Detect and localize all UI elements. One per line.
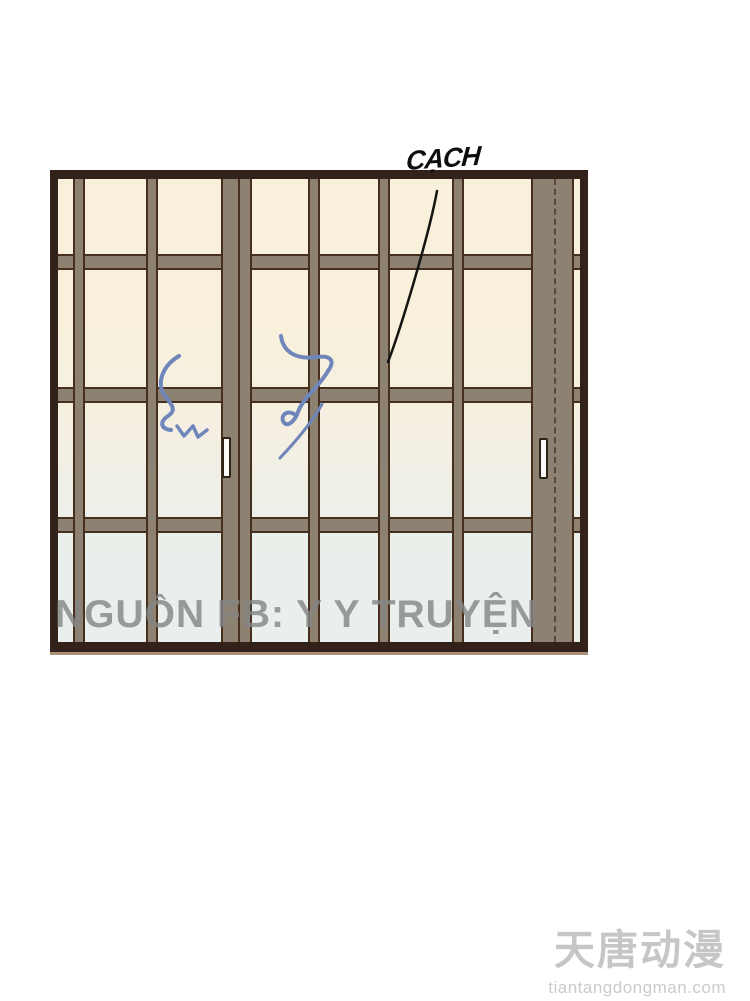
watermark: NGUỒN FB: Y Y TRUYỆN <box>55 593 538 637</box>
window-glass <box>58 179 580 642</box>
sliding-door-window-frame <box>50 170 588 655</box>
stile-divider-line <box>238 179 240 642</box>
door-handle-left <box>222 437 231 478</box>
left-door-muntin <box>146 179 158 642</box>
left-track-stile <box>73 179 85 642</box>
stile-dashed-line <box>554 179 556 642</box>
right-door-edge-stile <box>531 179 574 642</box>
sfx-text: CẠCH <box>405 141 481 177</box>
center-meeting-stiles <box>221 179 252 642</box>
right-door-muntin-1 <box>308 179 320 642</box>
publisher-logo: 天唐动漫 tiantangdongman.com <box>548 916 726 998</box>
door-handle-right <box>539 438 548 479</box>
right-door-muntin-2 <box>378 179 390 642</box>
right-door-muntin-3 <box>452 179 464 642</box>
publisher-brand: 天唐动漫 <box>548 916 726 976</box>
publisher-domain: tiantangdongman.com <box>548 978 726 998</box>
